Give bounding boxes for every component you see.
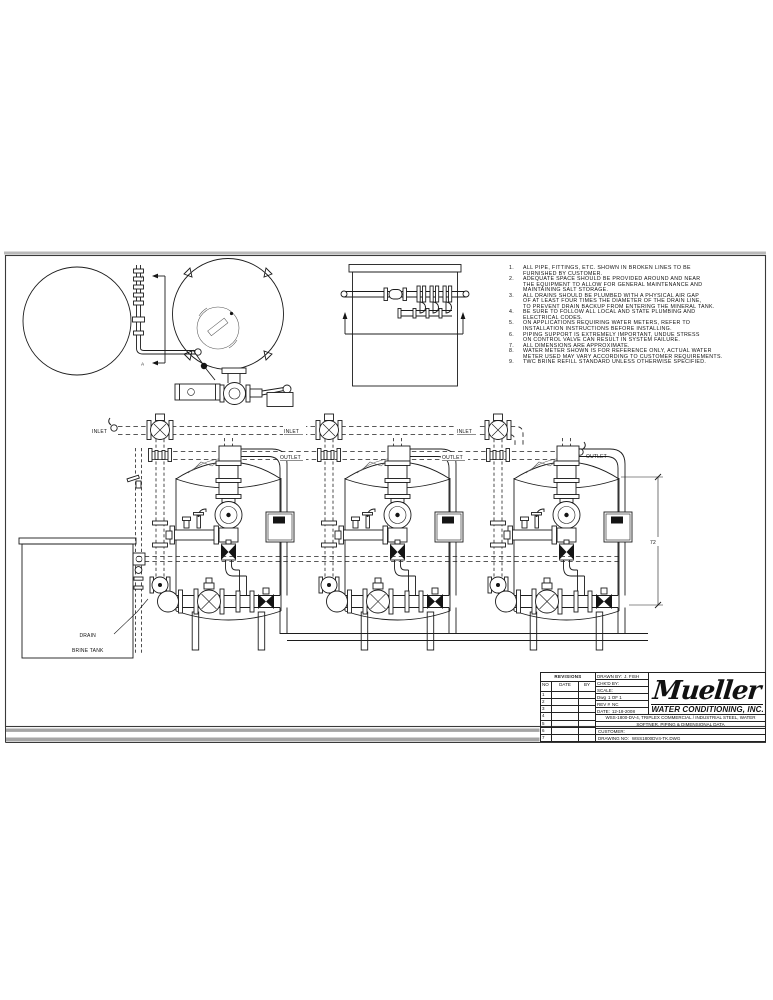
note-number: 1.: [509, 266, 523, 272]
title-block: REVISIONS NO DATE BY 1234567 DRAWN BY:J.…: [540, 672, 766, 742]
dwg-value: 1 OF 1: [608, 695, 622, 700]
note-text: PIPING SUPPORT IS EXTREMELY IMPORTANT, U…: [523, 333, 754, 344]
top-view: A A: [23, 259, 293, 407]
note-number: 5.: [509, 321, 523, 327]
outlet-label-1: OUTLET: [280, 455, 301, 461]
dwg-label: Dwg: [597, 695, 606, 700]
revision-row-number: 5: [541, 721, 552, 727]
inlet-label-3: INLET: [457, 429, 472, 435]
revision-row: 7: [541, 735, 595, 741]
revision-row-by: [579, 735, 595, 741]
revision-row-number: 2: [541, 699, 552, 705]
rev-label: REV #: [597, 702, 610, 707]
note-number: 8.: [509, 349, 523, 355]
revision-row: 3: [541, 706, 595, 713]
date-label: DATE:: [597, 709, 610, 714]
chkd-by-label: CHK'D BY:: [597, 681, 619, 686]
rev-value: NC: [612, 702, 619, 707]
section-drop-elbows: [417, 286, 452, 313]
note-text: TWC BRINE REFILL STANDARD UNLESS OTHERWI…: [523, 360, 754, 366]
drawing-no-value: WSS1800DV4-TK.DWG: [632, 736, 681, 741]
drawing-sheet: A A: [0, 0, 773, 1000]
note-number: 3.: [509, 294, 523, 300]
description-line-2: SOFTNER, PIPING & DIMENSIONAL DATA: [636, 722, 724, 727]
tank-unit-3: [485, 414, 632, 650]
revision-row-by: [579, 692, 595, 698]
top-view-brine-tank-circle: [23, 267, 131, 375]
note-number: 2.: [509, 277, 523, 283]
notes-list: 1.ALL PIPE, FITTINGS, ETC. SHOWN IN BROK…: [509, 266, 754, 366]
height-dimension-text: 72: [650, 540, 656, 546]
revision-row-by: [579, 721, 595, 727]
section-label-a-top: A: [141, 275, 144, 280]
revisions-header: NO DATE BY: [541, 682, 595, 692]
revision-row-date: [552, 706, 579, 712]
drawing-canvas: A A: [0, 0, 773, 1000]
section-view: [341, 265, 469, 387]
revision-row-by: [579, 706, 595, 712]
revision-row-date: [552, 713, 579, 719]
revisions-table: REVISIONS NO DATE BY 1234567: [541, 673, 596, 741]
top-view-valve-assembly: [175, 368, 293, 407]
tank-unit-1: [147, 414, 294, 650]
revision-row-date: [552, 728, 579, 734]
brine-tank: DRAIN BRINE TANK: [19, 538, 148, 658]
revision-row-date: [552, 692, 579, 698]
revision-row-number: 4: [541, 713, 552, 719]
inlet-label-2: INLET: [284, 429, 299, 435]
title-block-fields: DRAWN BY:J. FISH CHK'D BY: SCALE: Dwg1 O…: [596, 673, 649, 714]
revisions-rows: 1234567: [541, 692, 595, 741]
note-text: ON APPLICATIONS REQUIRING WATER METERS, …: [523, 321, 754, 332]
revision-row: 2: [541, 699, 595, 706]
revision-row: 4: [541, 713, 595, 720]
tank-unit-2: [316, 414, 463, 650]
note-text: ALL DRAINS SHOULD BE PLUMBED WITH A PHYS…: [523, 294, 754, 311]
revision-row-number: 1: [541, 692, 552, 698]
note-number: 4.: [509, 310, 523, 316]
revision-row-number: 6: [541, 728, 552, 734]
revision-row: 6: [541, 728, 595, 735]
revision-row-date: [552, 735, 579, 741]
drain-label: DRAIN: [79, 633, 96, 639]
revision-row: 5: [541, 721, 595, 728]
date-value: 12-18-2008: [612, 709, 635, 714]
note-item: 2.ADEQUATE SPACE SHOULD BE PROVIDED AROU…: [509, 277, 754, 294]
revision-row-by: [579, 728, 595, 734]
elevation-view: DRAIN BRINE TANK INLET INLET INLET OUTLE…: [19, 414, 663, 658]
outlet-header-line: [150, 442, 585, 460]
note-item: 5.ON APPLICATIONS REQUIRING WATER METERS…: [509, 321, 754, 332]
description-line-1: WSS-1800-DV-4, TRIPLEX COMMERCIAL / INDU…: [605, 715, 755, 720]
note-text: ADEQUATE SPACE SHOULD BE PROVIDED AROUND…: [523, 277, 754, 294]
drawn-by-label: DRAWN BY:: [597, 674, 622, 679]
drain-header: [280, 634, 648, 641]
company-name: Mueller: [652, 678, 762, 704]
note-number: 6.: [509, 333, 523, 339]
top-view-mineral-tank-circle: [173, 259, 284, 370]
scale-label: SCALE:: [597, 688, 613, 693]
note-item: 9.TWC BRINE REFILL STANDARD UNLESS OTHER…: [509, 360, 754, 366]
inlet-label-1: INLET: [92, 429, 107, 435]
revision-row-by: [579, 713, 595, 719]
revision-row-date: [552, 721, 579, 727]
revisions-col-no: NO: [541, 682, 552, 691]
revision-row: 1: [541, 692, 595, 699]
brine-drain-line: [127, 448, 145, 655]
outlet-label-2: OUTLET: [442, 455, 463, 461]
brine-tank-label: BRINE TANK: [72, 648, 104, 654]
note-item: 3.ALL DRAINS SHOULD BE PLUMBED WITH A PH…: [509, 294, 754, 311]
drawing-no-label: DRAWING NO:: [598, 736, 629, 741]
revision-row-number: 3: [541, 706, 552, 712]
company-logo: Mueller WATER CONDITIONING, INC.: [649, 673, 765, 714]
outlet-label-3: OUTLET: [586, 454, 607, 460]
revisions-title: REVISIONS: [541, 673, 595, 682]
revisions-col-date: DATE: [552, 682, 579, 691]
note-item: 6.PIPING SUPPORT IS EXTREMELY IMPORTANT,…: [509, 333, 754, 344]
section-label-a-bottom: A: [141, 362, 144, 367]
drawn-by-value: J. FISH: [624, 674, 639, 679]
revision-row-date: [552, 699, 579, 705]
top-view-brine-piping: [133, 265, 216, 380]
revision-row-by: [579, 699, 595, 705]
note-number: 9.: [509, 360, 523, 366]
revision-row-number: 7: [541, 735, 552, 741]
customer-label: CUSTOMER:: [598, 729, 625, 734]
revisions-col-by: BY: [579, 682, 595, 691]
